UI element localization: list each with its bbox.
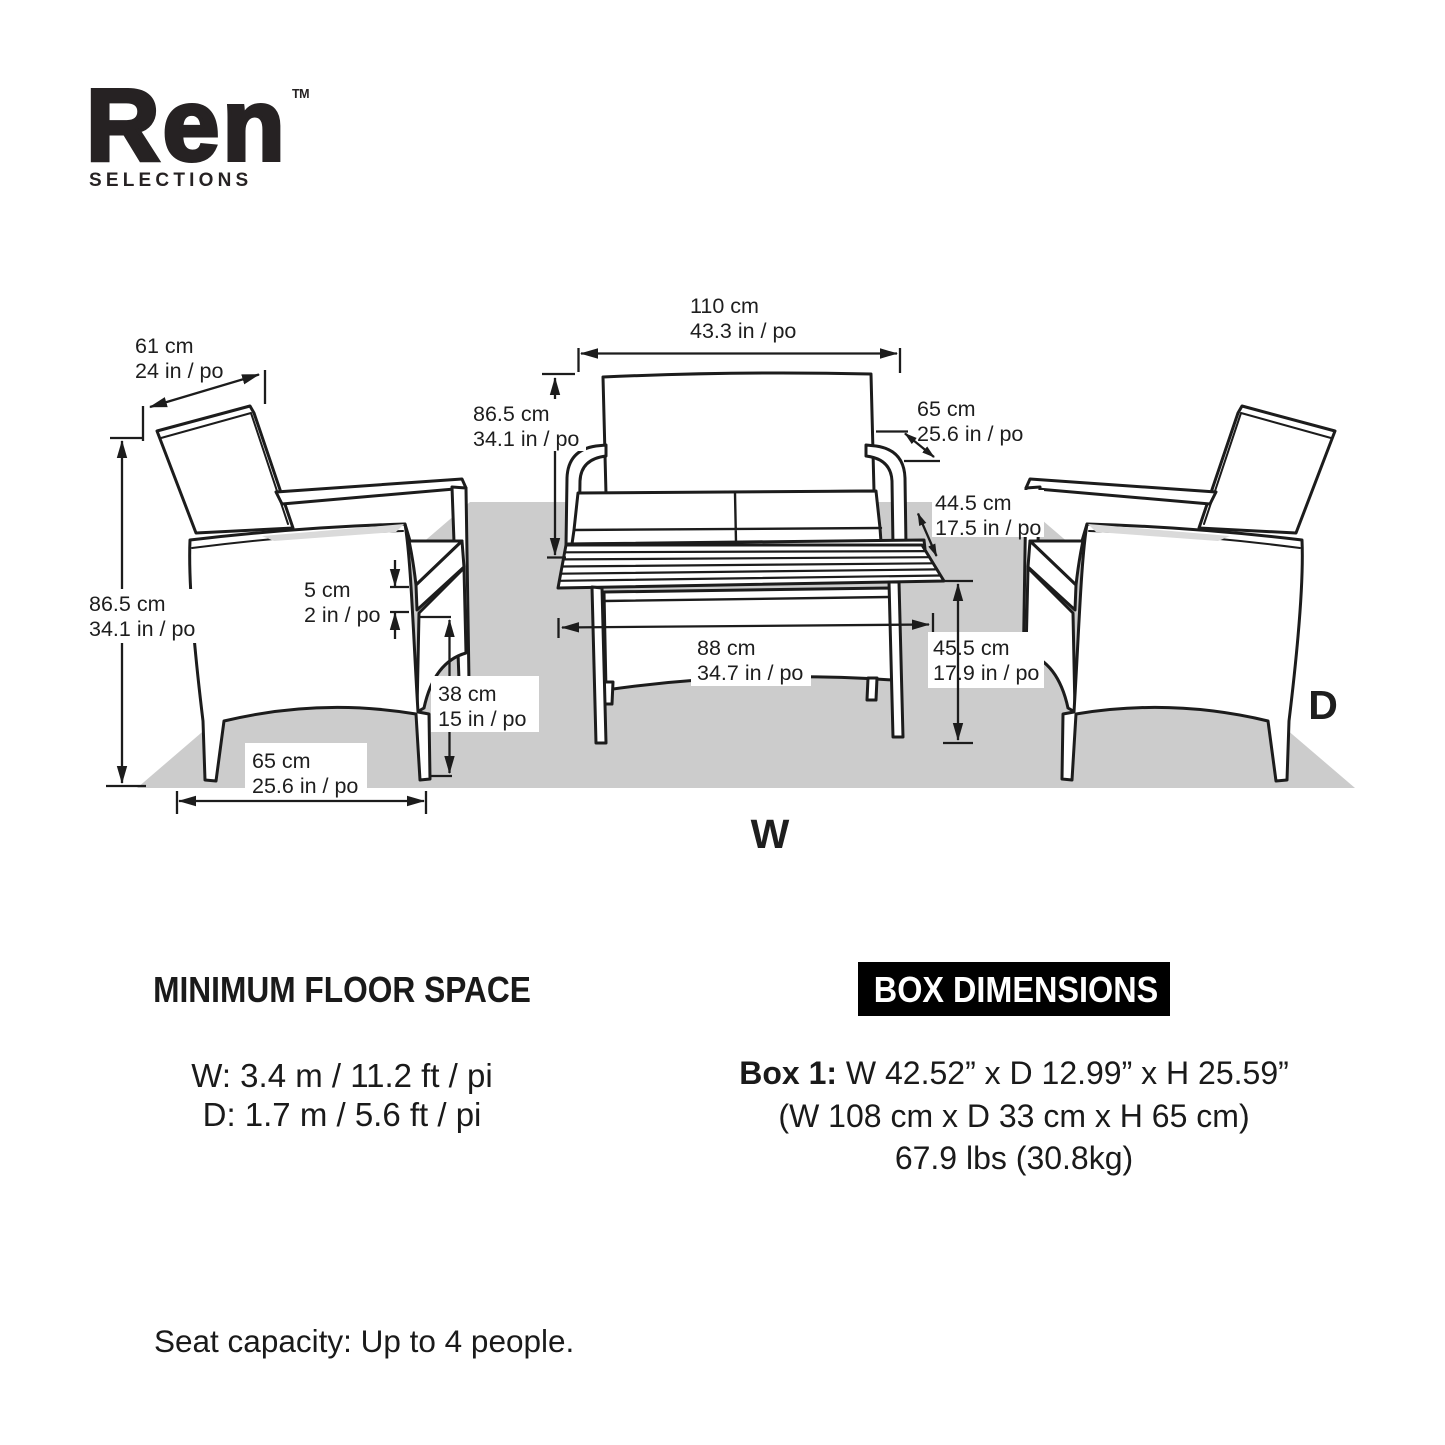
svg-text:15 in / po: 15 in / po: [438, 707, 526, 731]
svg-text:65 cm: 65 cm: [252, 749, 311, 773]
svg-text:17.9 in / po: 17.9 in / po: [933, 661, 1039, 685]
svg-text:88 cm: 88 cm: [697, 636, 756, 660]
svg-text:38 cm: 38 cm: [438, 682, 497, 706]
svg-text:34.7 in / po: 34.7 in / po: [697, 661, 803, 685]
svg-text:61 cm: 61 cm: [135, 334, 194, 358]
svg-text:110 cm: 110 cm: [690, 294, 759, 318]
svg-text:W: W: [751, 811, 790, 857]
svg-text:5 cm: 5 cm: [304, 578, 351, 602]
svg-text:34.1 in / po: 34.1 in / po: [89, 617, 195, 641]
svg-text:44.5 cm: 44.5 cm: [935, 491, 1011, 515]
svg-text:24 in / po: 24 in / po: [135, 359, 223, 383]
svg-text:2 in / po: 2 in / po: [304, 603, 381, 627]
svg-text:65 cm: 65 cm: [917, 397, 976, 421]
svg-text:43.3 in / po: 43.3 in / po: [690, 319, 796, 343]
svg-text:25.6 in / po: 25.6 in / po: [917, 422, 1023, 446]
svg-text:45.5 cm: 45.5 cm: [933, 636, 1009, 660]
svg-text:D: D: [1308, 682, 1338, 728]
svg-text:86.5 cm: 86.5 cm: [89, 592, 165, 616]
svg-text:86.5 cm: 86.5 cm: [473, 402, 549, 426]
svg-text:17.5 in / po: 17.5 in / po: [935, 516, 1041, 540]
svg-text:25.6 in / po: 25.6 in / po: [252, 774, 358, 798]
svg-text:34.1 in / po: 34.1 in / po: [473, 427, 579, 451]
